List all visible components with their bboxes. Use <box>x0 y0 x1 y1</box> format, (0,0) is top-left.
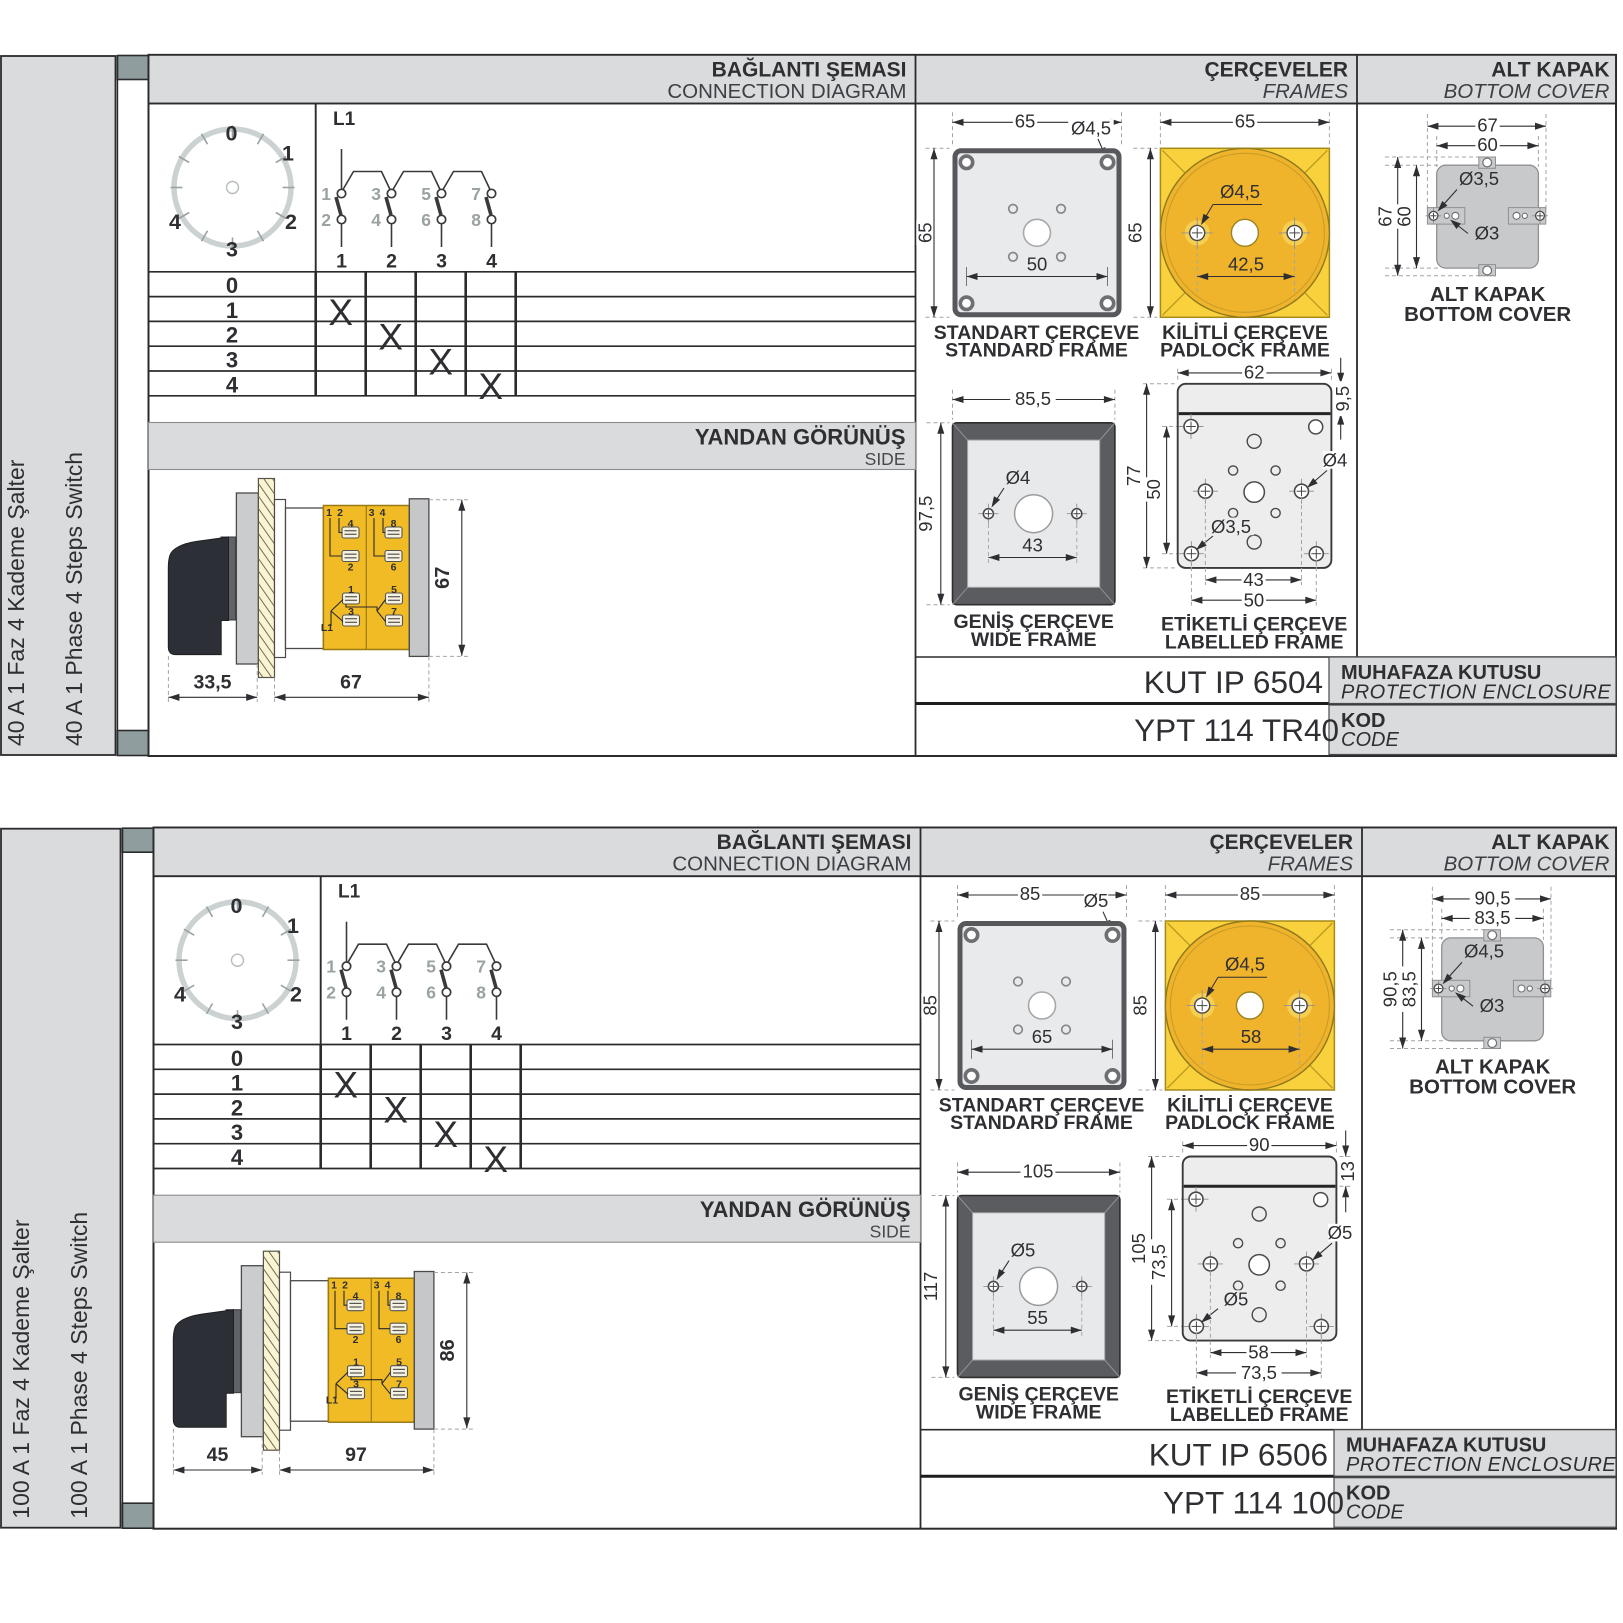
svg-text:85: 85 <box>1240 883 1261 904</box>
svg-text:X: X <box>483 1139 508 1180</box>
svg-text:4: 4 <box>348 518 354 530</box>
svg-text:105: 105 <box>1023 1161 1054 1182</box>
svg-text:1: 1 <box>326 507 332 519</box>
svg-text:83,5: 83,5 <box>1399 971 1420 1007</box>
svg-text:97,5: 97,5 <box>915 496 936 532</box>
svg-text:1: 1 <box>336 251 347 273</box>
svg-text:3: 3 <box>231 1120 243 1145</box>
svg-text:58: 58 <box>1248 1342 1269 1363</box>
svg-text:Ø4,5: Ø4,5 <box>1220 181 1260 202</box>
svg-text:4: 4 <box>486 251 497 273</box>
svg-text:50: 50 <box>1027 254 1048 275</box>
svg-text:2: 2 <box>290 983 302 1007</box>
svg-text:1: 1 <box>231 1071 243 1096</box>
svg-text:CONNECTION DIAGRAM: CONNECTION DIAGRAM <box>672 853 911 876</box>
svg-text:KUT IP 6504: KUT IP 6504 <box>1144 664 1323 700</box>
svg-text:60: 60 <box>1477 134 1498 155</box>
svg-text:4: 4 <box>353 1291 359 1303</box>
svg-text:3: 3 <box>348 606 354 618</box>
svg-text:62: 62 <box>1244 361 1265 382</box>
svg-text:CODE: CODE <box>1341 729 1399 751</box>
svg-text:7: 7 <box>396 1379 402 1391</box>
svg-text:4: 4 <box>491 1023 502 1045</box>
svg-text:BAĞLANTI ŞEMASI: BAĞLANTI ŞEMASI <box>712 58 907 82</box>
svg-text:KUT IP 6506: KUT IP 6506 <box>1149 1437 1328 1473</box>
svg-text:8: 8 <box>396 1291 402 1303</box>
svg-text:2: 2 <box>226 323 238 348</box>
svg-text:5: 5 <box>426 957 436 977</box>
svg-text:42,5: 42,5 <box>1228 254 1264 275</box>
svg-text:YPT 114 100: YPT 114 100 <box>1163 1485 1344 1521</box>
svg-text:7: 7 <box>391 606 397 618</box>
svg-text:67: 67 <box>432 567 454 589</box>
svg-text:3: 3 <box>226 238 238 262</box>
svg-text:0: 0 <box>231 1046 243 1071</box>
svg-text:3: 3 <box>374 1280 380 1292</box>
svg-text:4: 4 <box>226 372 239 397</box>
svg-text:55: 55 <box>1027 1307 1048 1328</box>
svg-text:SIDE: SIDE <box>870 1222 911 1242</box>
svg-text:1: 1 <box>287 914 299 938</box>
svg-text:BAĞLANTI ŞEMASI: BAĞLANTI ŞEMASI <box>717 830 912 854</box>
svg-text:2: 2 <box>342 1280 348 1292</box>
svg-text:4: 4 <box>169 210 181 234</box>
svg-text:X: X <box>383 1089 408 1130</box>
svg-text:Ø5: Ø5 <box>1328 1222 1353 1243</box>
svg-text:43: 43 <box>1243 569 1264 590</box>
svg-text:Ø3: Ø3 <box>1475 223 1500 244</box>
svg-text:3: 3 <box>226 348 238 373</box>
svg-text:CODE: CODE <box>1346 1502 1404 1524</box>
svg-text:L1: L1 <box>338 882 361 903</box>
svg-text:90,5: 90,5 <box>1474 887 1510 908</box>
svg-text:117: 117 <box>920 1272 941 1302</box>
svg-text:6: 6 <box>396 1334 402 1346</box>
svg-text:CONNECTION DIAGRAM: CONNECTION DIAGRAM <box>667 80 906 103</box>
svg-text:50: 50 <box>1244 589 1265 610</box>
svg-text:65: 65 <box>1125 222 1146 243</box>
svg-text:Ø4,5: Ø4,5 <box>1464 941 1504 962</box>
svg-text:60: 60 <box>1394 206 1415 227</box>
svg-text:2: 2 <box>337 507 343 519</box>
svg-text:Ø3,5: Ø3,5 <box>1211 516 1251 537</box>
svg-text:PADLOCK FRAME: PADLOCK FRAME <box>1165 1112 1335 1134</box>
svg-text:PROTECTION ENCLOSURE: PROTECTION ENCLOSURE <box>1341 682 1611 704</box>
svg-text:0: 0 <box>231 894 243 918</box>
svg-text:SIDE: SIDE <box>865 449 906 469</box>
svg-text:6: 6 <box>426 983 436 1003</box>
svg-text:BOTTOM COVER: BOTTOM COVER <box>1444 853 1610 876</box>
svg-text:L1: L1 <box>321 622 333 634</box>
svg-text:4: 4 <box>380 507 386 519</box>
svg-text:YANDAN GÖRÜNÜŞ: YANDAN GÖRÜNÜŞ <box>700 1197 911 1222</box>
svg-text:8: 8 <box>471 210 481 230</box>
svg-text:L1: L1 <box>333 109 356 130</box>
svg-text:YPT 114 TR40: YPT 114 TR40 <box>1134 712 1339 748</box>
svg-text:2: 2 <box>326 983 336 1003</box>
svg-text:8: 8 <box>391 518 397 530</box>
svg-text:WIDE FRAME: WIDE FRAME <box>971 629 1097 651</box>
svg-text:0: 0 <box>226 273 238 298</box>
svg-text:33,5: 33,5 <box>194 672 232 694</box>
svg-text:43: 43 <box>1022 535 1043 556</box>
svg-text:65: 65 <box>1032 1026 1053 1047</box>
svg-text:65: 65 <box>1015 111 1036 132</box>
svg-text:5: 5 <box>391 584 397 596</box>
svg-text:X: X <box>328 292 353 333</box>
svg-text:3: 3 <box>369 507 375 519</box>
svg-text:73,5: 73,5 <box>1148 1244 1169 1280</box>
svg-text:40 A 1 Phase 4 Steps Switch: 40 A 1 Phase 4 Steps Switch <box>61 452 87 746</box>
svg-text:0: 0 <box>226 122 238 146</box>
svg-text:77: 77 <box>1123 466 1144 487</box>
svg-text:WIDE FRAME: WIDE FRAME <box>976 1402 1102 1424</box>
svg-text:85,5: 85,5 <box>1015 388 1051 409</box>
svg-text:Ø4,5: Ø4,5 <box>1225 954 1265 975</box>
svg-text:4: 4 <box>231 1145 244 1170</box>
svg-text:90: 90 <box>1249 1134 1270 1155</box>
svg-text:1: 1 <box>321 184 331 204</box>
svg-text:Ø5: Ø5 <box>1224 1289 1249 1310</box>
svg-text:50: 50 <box>1143 479 1164 500</box>
svg-text:105: 105 <box>1128 1233 1149 1264</box>
svg-text:100 A 1 Faz 4 Kademe Şalter: 100 A 1 Faz 4 Kademe Şalter <box>8 1219 34 1519</box>
svg-text:4: 4 <box>174 983 186 1007</box>
svg-text:65: 65 <box>915 222 936 243</box>
svg-text:Ø4: Ø4 <box>1323 450 1348 471</box>
svg-text:ALT KAPAK: ALT KAPAK <box>1491 831 1609 854</box>
svg-text:X: X <box>333 1065 358 1106</box>
svg-text:2: 2 <box>321 210 331 230</box>
svg-text:67: 67 <box>340 672 362 694</box>
svg-text:Ø4,5: Ø4,5 <box>1071 118 1111 139</box>
svg-text:45: 45 <box>207 1444 229 1466</box>
svg-text:BOTTOM COVER: BOTTOM COVER <box>1444 80 1610 103</box>
svg-text:86: 86 <box>437 1339 459 1361</box>
svg-text:3: 3 <box>436 251 447 273</box>
svg-text:1: 1 <box>326 957 336 977</box>
svg-text:97: 97 <box>345 1444 367 1466</box>
svg-text:2: 2 <box>285 210 297 234</box>
svg-text:2: 2 <box>231 1095 243 1120</box>
svg-text:100 A 1 Phase 4 Steps Switch: 100 A 1 Phase 4 Steps Switch <box>66 1212 92 1519</box>
svg-text:85: 85 <box>1130 995 1151 1016</box>
svg-text:BOTTOM COVER: BOTTOM COVER <box>1404 303 1571 326</box>
svg-text:Ø3,5: Ø3,5 <box>1459 168 1499 189</box>
svg-text:1: 1 <box>348 584 354 596</box>
svg-text:Ø5: Ø5 <box>1084 890 1109 911</box>
svg-text:4: 4 <box>376 983 386 1003</box>
svg-text:73,5: 73,5 <box>1241 1362 1277 1383</box>
svg-text:85: 85 <box>920 995 941 1016</box>
svg-text:85: 85 <box>1020 883 1041 904</box>
svg-text:LABELLED FRAME: LABELLED FRAME <box>1165 632 1344 654</box>
svg-text:Ø5: Ø5 <box>1011 1240 1036 1261</box>
svg-text:83,5: 83,5 <box>1474 907 1510 928</box>
svg-text:5: 5 <box>396 1357 402 1369</box>
svg-text:9,5: 9,5 <box>1332 386 1353 412</box>
svg-text:X: X <box>428 341 453 382</box>
svg-text:1: 1 <box>341 1023 352 1045</box>
svg-text:8: 8 <box>476 983 486 1003</box>
svg-text:1: 1 <box>282 142 294 166</box>
svg-text:1: 1 <box>226 298 238 323</box>
svg-text:FRAMES: FRAMES <box>1263 80 1349 103</box>
svg-text:BOTTOM COVER: BOTTOM COVER <box>1409 1076 1576 1099</box>
svg-text:X: X <box>433 1114 458 1155</box>
svg-text:4: 4 <box>371 210 381 230</box>
svg-text:2: 2 <box>353 1334 359 1346</box>
svg-text:FRAMES: FRAMES <box>1268 853 1354 876</box>
svg-text:Ø4: Ø4 <box>1006 467 1031 488</box>
svg-text:7: 7 <box>476 957 486 977</box>
svg-text:6: 6 <box>391 562 397 574</box>
svg-text:PADLOCK FRAME: PADLOCK FRAME <box>1160 340 1330 362</box>
svg-text:13: 13 <box>1337 1161 1358 1182</box>
svg-text:3: 3 <box>371 184 381 204</box>
svg-text:3: 3 <box>441 1023 452 1045</box>
svg-text:3: 3 <box>231 1010 243 1034</box>
svg-text:1: 1 <box>331 1280 337 1292</box>
svg-text:PROTECTION ENCLOSURE: PROTECTION ENCLOSURE <box>1346 1454 1616 1476</box>
svg-text:40 A 1 Faz 4 Kademe Şalter: 40 A 1 Faz 4 Kademe Şalter <box>3 459 29 746</box>
svg-text:67: 67 <box>1477 115 1498 136</box>
svg-text:L1: L1 <box>326 1395 338 1407</box>
svg-text:1: 1 <box>353 1357 359 1369</box>
svg-text:2: 2 <box>348 562 354 574</box>
svg-text:2: 2 <box>391 1023 402 1045</box>
svg-text:6: 6 <box>421 210 431 230</box>
svg-text:3: 3 <box>353 1379 359 1391</box>
svg-text:X: X <box>478 366 503 407</box>
svg-text:58: 58 <box>1241 1026 1262 1047</box>
svg-text:Ø3: Ø3 <box>1480 995 1505 1016</box>
svg-text:4: 4 <box>385 1280 391 1292</box>
svg-text:65: 65 <box>1235 111 1256 132</box>
svg-text:ALT KAPAK: ALT KAPAK <box>1491 59 1609 82</box>
svg-text:X: X <box>378 317 403 358</box>
svg-text:ÇERÇEVELER: ÇERÇEVELER <box>1209 831 1353 854</box>
svg-text:7: 7 <box>471 184 481 204</box>
svg-text:LABELLED FRAME: LABELLED FRAME <box>1170 1404 1349 1426</box>
svg-text:STANDARD FRAME: STANDARD FRAME <box>950 1112 1133 1134</box>
svg-text:3: 3 <box>376 957 386 977</box>
svg-text:STANDARD FRAME: STANDARD FRAME <box>945 340 1128 362</box>
svg-text:ÇERÇEVELER: ÇERÇEVELER <box>1204 59 1348 82</box>
svg-text:2: 2 <box>386 251 397 273</box>
svg-text:YANDAN GÖRÜNÜŞ: YANDAN GÖRÜNÜŞ <box>695 425 906 450</box>
svg-text:5: 5 <box>421 184 431 204</box>
